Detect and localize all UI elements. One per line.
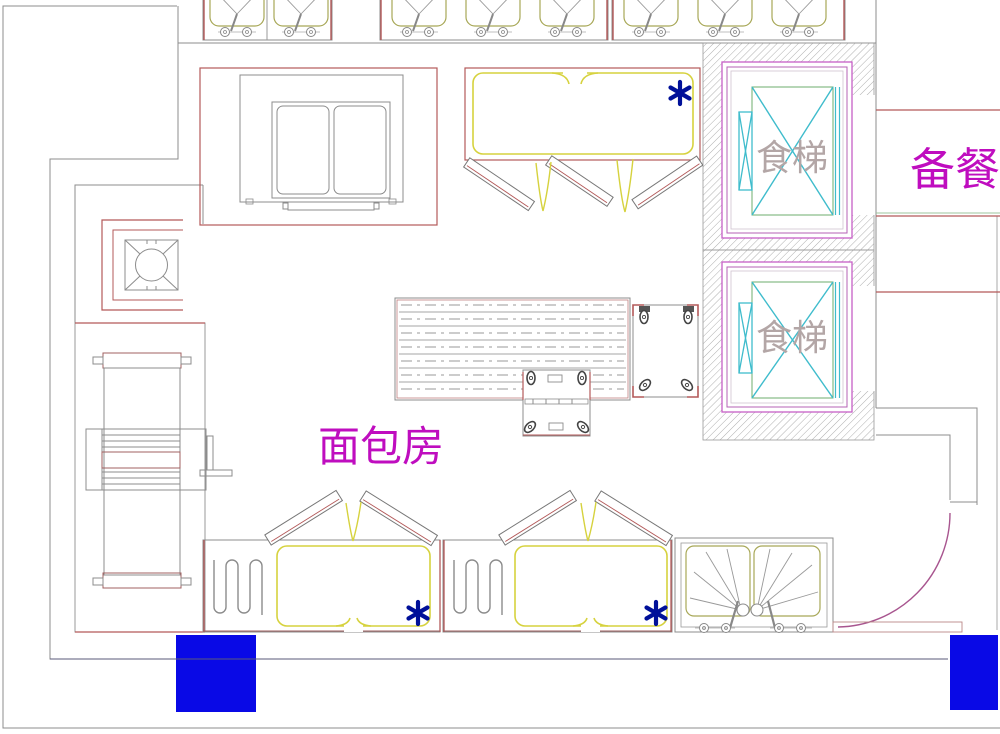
trolley-1: [523, 370, 591, 436]
door-swing: [833, 513, 962, 632]
double-sink-unit: [675, 538, 833, 633]
wall-lines-red: [876, 110, 1000, 292]
column-2: [950, 635, 998, 710]
proofer-door-leaves: [464, 156, 703, 212]
asterisk-icon: [671, 82, 690, 104]
sink-row-top-right: [612, 0, 845, 40]
dumbwaiter-1-label: 食梯: [756, 137, 828, 178]
sink-row-top-left: [203, 0, 332, 40]
oven-2-door-leaves: [499, 490, 673, 545]
work-table: [395, 298, 630, 400]
door-arc-icon: [838, 513, 950, 627]
trolley-2: [633, 305, 698, 397]
room-label-prep: 备餐间: [910, 144, 1000, 195]
dough-sheeter: [75, 323, 232, 632]
heater-coil-icon: [454, 560, 502, 615]
heater-coil-icon: [214, 560, 262, 615]
sink-row-top-center: [380, 0, 608, 40]
dumbwaiter-1: 食梯: [722, 62, 852, 238]
dumbwaiter-2-label: 食梯: [756, 317, 828, 358]
proofer-cabinet: [464, 68, 703, 212]
floor-plan-svg: 食梯 食梯: [0, 0, 1000, 734]
asterisk-icon: [647, 602, 666, 624]
oven-1-door-leaves: [265, 490, 438, 545]
column-1: [176, 635, 256, 712]
floor-plan-canvas: 食梯 食梯: [0, 0, 1000, 734]
asterisk-icon: [409, 602, 428, 624]
dumbwaiter-2: 食梯: [722, 262, 852, 412]
room-label-bakery: 面包房: [318, 423, 444, 470]
deck-oven: [200, 68, 437, 225]
gas-burner: [102, 220, 183, 310]
oven-unit-1: [203, 490, 440, 632]
oven-unit-2: [443, 490, 672, 632]
